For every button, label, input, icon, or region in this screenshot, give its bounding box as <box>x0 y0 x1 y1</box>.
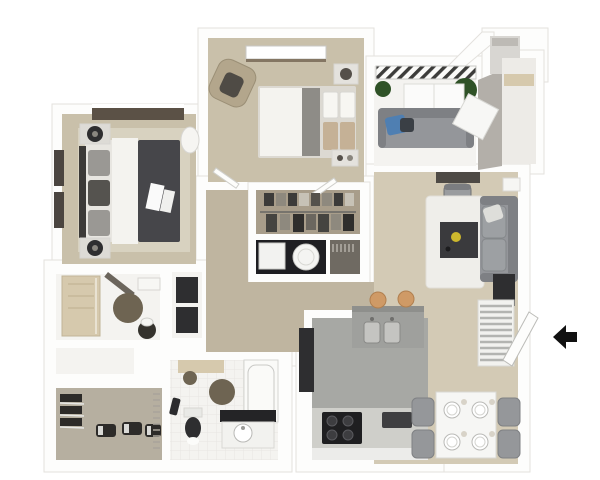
floor-entry-strip <box>502 58 536 164</box>
coffee-table <box>440 222 478 258</box>
nightstand-top-right <box>334 64 358 84</box>
washer <box>259 243 285 269</box>
vanity <box>138 278 160 290</box>
double-bed <box>79 138 180 244</box>
shoes <box>96 422 161 437</box>
cup <box>461 399 467 405</box>
entry-arrow <box>553 325 577 349</box>
dining-chair <box>412 398 434 426</box>
bar-stool <box>370 292 386 308</box>
round-rug <box>209 379 235 405</box>
round-rug <box>113 293 143 323</box>
bar-counter <box>352 306 424 348</box>
cup <box>489 399 495 405</box>
nightstand-top <box>80 124 110 144</box>
refrigerator <box>299 328 314 392</box>
desk <box>436 172 480 183</box>
window-top <box>246 46 326 62</box>
floor-hall-c <box>206 310 304 352</box>
range-stove <box>322 412 362 444</box>
window-left-1 <box>54 150 64 186</box>
round-rug-small <box>183 371 197 385</box>
sink-basin <box>364 322 380 343</box>
vanity-sink <box>220 410 276 448</box>
sofa <box>480 196 518 282</box>
storage-bin <box>176 277 198 303</box>
dining-chair <box>412 430 434 458</box>
side-closet <box>330 240 360 274</box>
floor-plan <box>0 0 600 480</box>
entry-strip-cabinet <box>504 74 534 86</box>
railing <box>376 66 476 79</box>
laundry <box>256 240 326 274</box>
window-left-2 <box>54 192 64 228</box>
dining-chair <box>498 430 520 458</box>
window-top <box>92 108 184 120</box>
wall-sconce <box>503 178 520 191</box>
cup <box>461 431 467 437</box>
counter-appliance <box>382 412 412 428</box>
floor-plan-image <box>0 0 600 480</box>
dark-pillow <box>400 118 414 132</box>
dining-chair <box>498 398 520 426</box>
floor-hall-a <box>206 190 248 282</box>
nightstand-bottom <box>80 238 110 258</box>
room-dining <box>412 392 520 458</box>
dining-table <box>436 392 496 458</box>
shoe-rack <box>60 394 84 428</box>
storage-bin <box>176 307 198 333</box>
laundry-basket <box>181 127 199 153</box>
niche-shadow <box>492 38 518 46</box>
cup <box>489 431 495 437</box>
floor-small-closet <box>56 348 134 374</box>
bath-mat <box>178 360 224 373</box>
sink-basin <box>384 322 400 343</box>
dryer <box>293 244 319 270</box>
nightstand-bottom-right <box>332 150 358 166</box>
bar-stool <box>398 291 414 307</box>
double-bed <box>258 86 356 158</box>
yellow-bowl <box>451 232 461 242</box>
potted-plant-small <box>375 81 391 97</box>
floor-hall-b <box>206 282 374 310</box>
shower <box>62 276 100 336</box>
headboard <box>79 146 86 238</box>
